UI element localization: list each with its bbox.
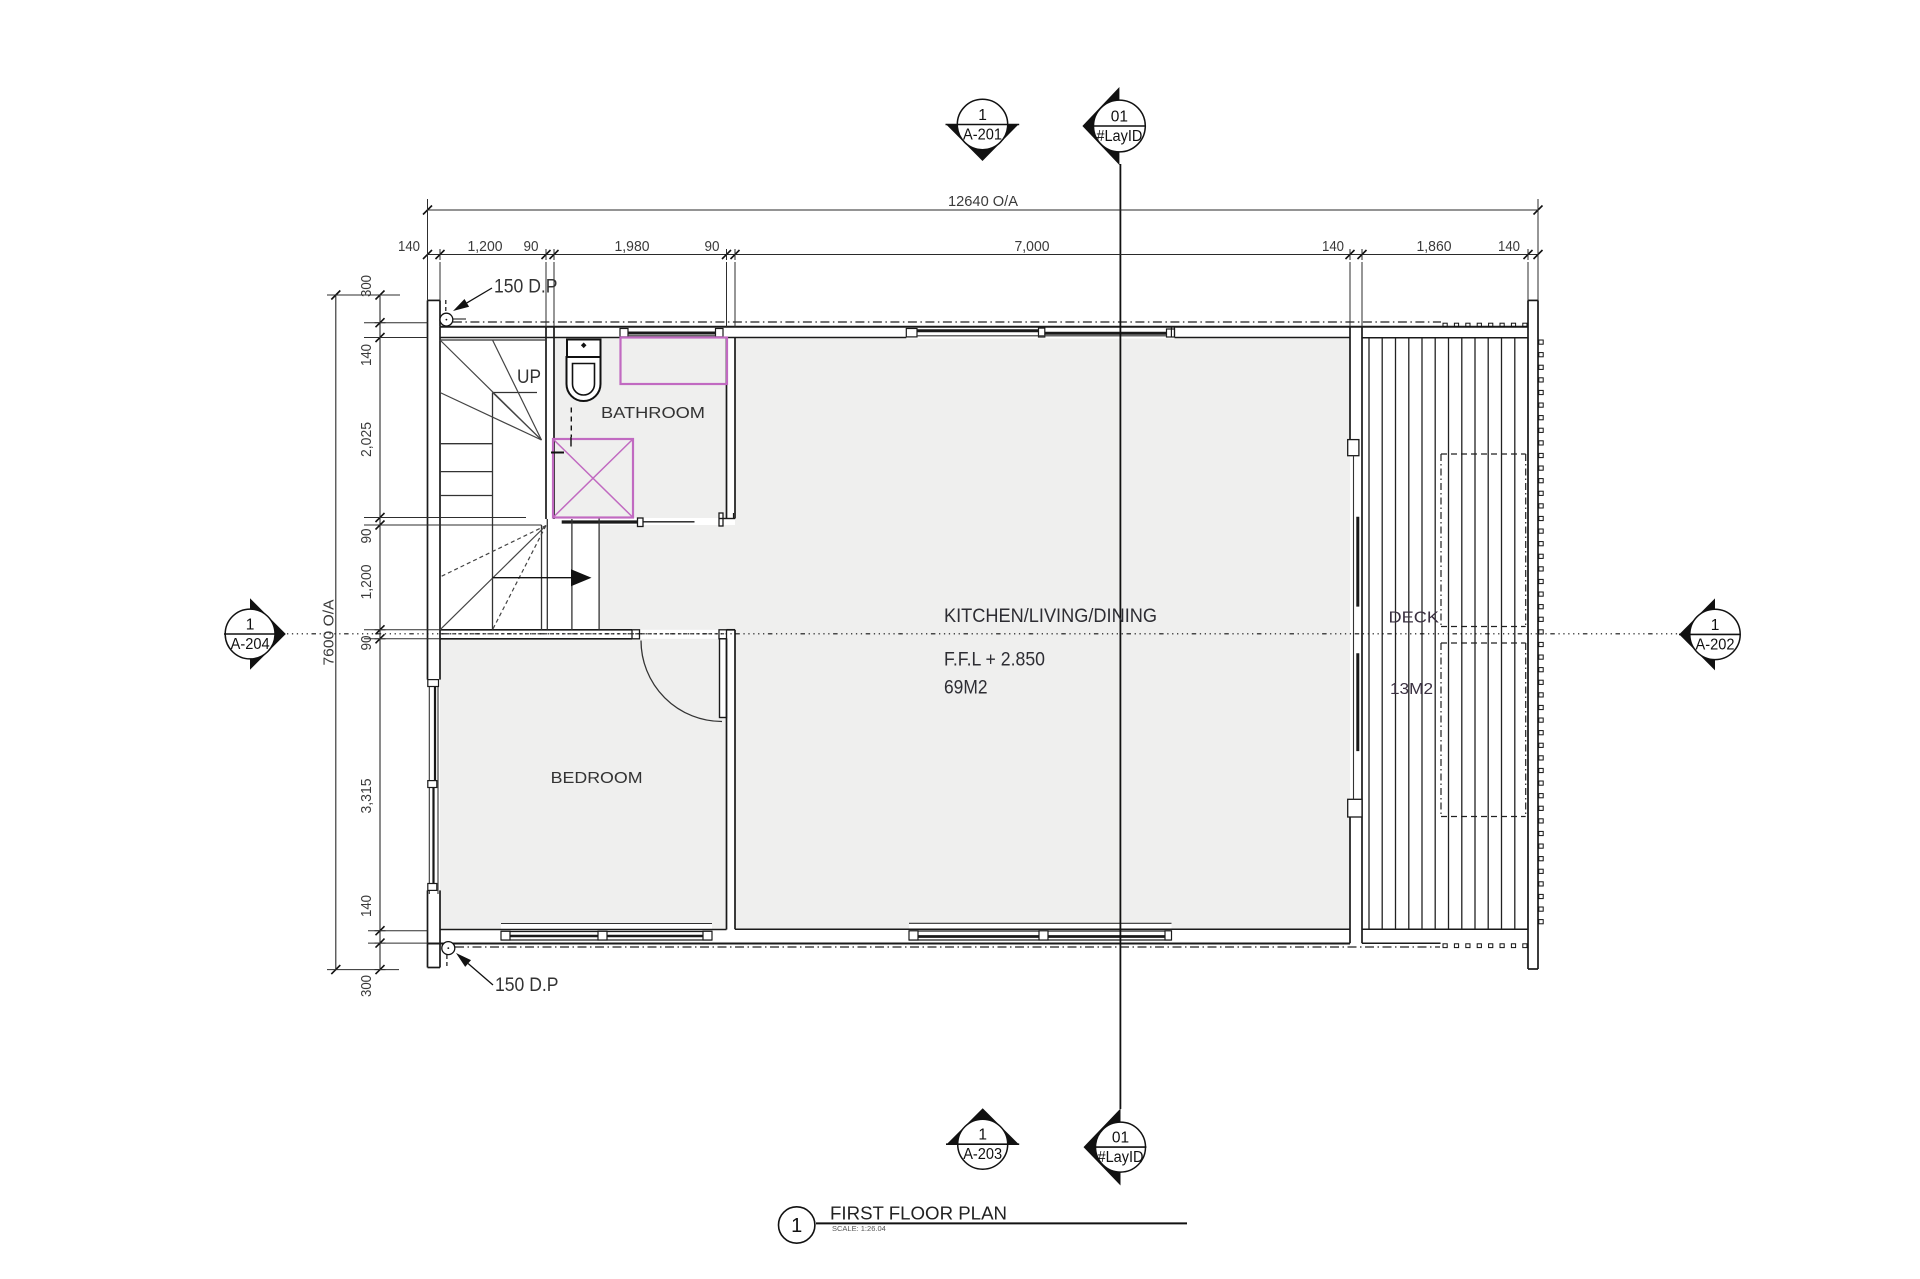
svg-text:140: 140 — [1498, 238, 1520, 255]
svg-text:01: 01 — [1112, 1130, 1129, 1147]
svg-text:7600 O/A: 7600 O/A — [321, 600, 338, 666]
svg-text:F.F.L + 2.850: F.F.L + 2.850 — [944, 650, 1045, 671]
svg-text:2,025: 2,025 — [358, 422, 375, 457]
svg-text:13M2: 13M2 — [1390, 681, 1433, 698]
svg-text:1: 1 — [978, 1127, 987, 1144]
svg-text:#LayID: #LayID — [1096, 128, 1142, 145]
svg-text:12640 O/A: 12640 O/A — [948, 193, 1018, 210]
svg-text:1,860: 1,860 — [1417, 238, 1452, 255]
svg-text:KITCHEN/LIVING/DINING: KITCHEN/LIVING/DINING — [944, 606, 1157, 627]
svg-text:90: 90 — [705, 238, 720, 255]
svg-text:01: 01 — [1111, 109, 1128, 126]
svg-text:A-203: A-203 — [963, 1146, 1002, 1163]
svg-text:#LayID: #LayID — [1098, 1149, 1144, 1166]
svg-text:A-201: A-201 — [963, 127, 1002, 144]
svg-text:140: 140 — [358, 344, 375, 366]
svg-text:69M2: 69M2 — [944, 678, 988, 699]
svg-text:300: 300 — [358, 275, 375, 297]
svg-text:140: 140 — [1322, 238, 1344, 255]
svg-text:1: 1 — [1711, 617, 1720, 634]
svg-text:150 D.P: 150 D.P — [494, 277, 558, 298]
svg-text:A-204: A-204 — [231, 636, 270, 653]
svg-text:1: 1 — [246, 617, 255, 634]
svg-text:SCALE: 1:26.04: SCALE: 1:26.04 — [832, 1224, 886, 1233]
svg-text:1,980: 1,980 — [615, 238, 650, 255]
svg-text:7,000: 7,000 — [1015, 238, 1050, 255]
svg-text:90: 90 — [524, 238, 539, 255]
svg-text:UP: UP — [517, 367, 541, 388]
svg-text:1: 1 — [978, 107, 987, 124]
svg-text:BATHROOM: BATHROOM — [601, 405, 705, 422]
svg-text:1,200: 1,200 — [358, 565, 375, 600]
svg-text:1: 1 — [791, 1215, 802, 1237]
svg-text:150 D.P: 150 D.P — [495, 975, 559, 996]
svg-text:300: 300 — [358, 975, 375, 997]
svg-text:1,200: 1,200 — [468, 238, 503, 255]
svg-text:140: 140 — [358, 895, 375, 917]
svg-text:3,315: 3,315 — [358, 779, 375, 814]
svg-text:140: 140 — [398, 238, 420, 255]
svg-text:BEDROOM: BEDROOM — [551, 770, 643, 787]
svg-text:90: 90 — [358, 529, 375, 544]
svg-text:A-202: A-202 — [1696, 636, 1735, 653]
svg-text:90: 90 — [358, 636, 375, 651]
svg-text:DECK: DECK — [1389, 610, 1440, 627]
svg-text:FIRST FLOOR PLAN: FIRST FLOOR PLAN — [830, 1203, 1007, 1224]
